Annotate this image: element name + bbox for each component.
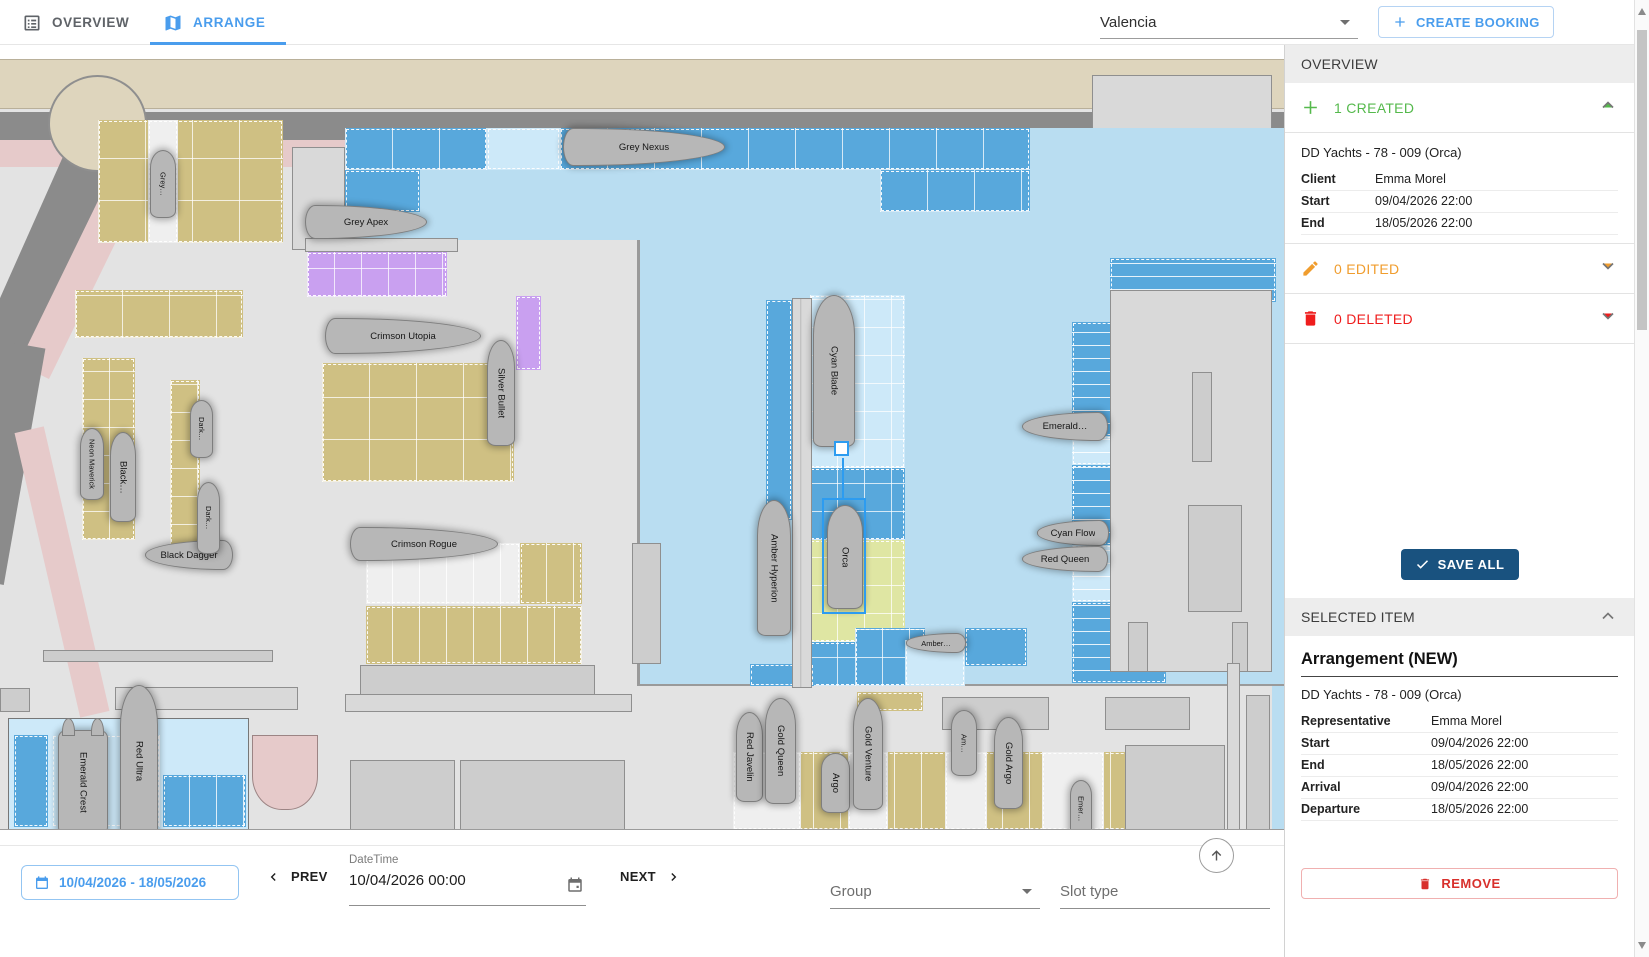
quay bbox=[1092, 75, 1272, 130]
boat-label: Grey Nexus bbox=[619, 142, 669, 153]
boat-label: Dark… bbox=[204, 506, 213, 529]
building bbox=[1246, 695, 1270, 830]
boat-label: Red Queen bbox=[1041, 554, 1090, 565]
slot-type-select[interactable]: Slot type bbox=[1060, 874, 1270, 909]
edited-section-label: 0 EDITED bbox=[1334, 261, 1399, 277]
arrangement-card: Arrangement (NEW) DD Yachts - 78 - 009 (… bbox=[1285, 636, 1634, 827]
arrangement-row: Arrival09/04/2026 22:00 bbox=[1301, 777, 1618, 799]
prev-label: PREV bbox=[291, 869, 328, 884]
tab-overview[interactable]: OVERVIEW bbox=[22, 0, 129, 45]
boat-neon-maverick[interactable]: Neon Maverick bbox=[80, 428, 104, 500]
save-all-label: SAVE ALL bbox=[1438, 557, 1505, 572]
slot-purple[interactable] bbox=[307, 252, 447, 297]
calendar-icon bbox=[34, 875, 50, 891]
dry-storage-slots[interactable] bbox=[366, 606, 582, 664]
overview-panel-title: OVERVIEW bbox=[1301, 56, 1378, 72]
berth-slot-free[interactable] bbox=[487, 128, 560, 170]
scroll-up-arrow-icon[interactable] bbox=[1638, 8, 1646, 15]
building bbox=[1125, 745, 1225, 830]
dock-strip bbox=[305, 238, 458, 252]
tab-arrange-label: ARRANGE bbox=[193, 15, 265, 30]
boat-label: Amber Hyperion bbox=[769, 534, 780, 603]
boat-argo[interactable]: Argo bbox=[821, 753, 850, 813]
chevron-left-icon bbox=[267, 870, 281, 884]
create-booking-label: CREATE BOOKING bbox=[1416, 15, 1540, 30]
chevron-up-icon bbox=[1598, 95, 1618, 120]
selection-connector-line bbox=[842, 458, 844, 500]
scroll-down-arrow-icon[interactable] bbox=[1638, 942, 1646, 949]
boat-label: Gold Queen bbox=[775, 725, 786, 776]
calendar-icon[interactable] bbox=[566, 876, 584, 899]
marina-map: Grey…Grey ApexGrey NexusCrimson UtopiaSi… bbox=[0, 45, 1284, 830]
boat-dark[interactable]: Dark… bbox=[197, 482, 220, 554]
building bbox=[43, 650, 273, 662]
building bbox=[360, 665, 595, 695]
building bbox=[1192, 372, 1212, 462]
overview-sidebar: OVERVIEW 1 CREATED DD Yachts - 78 - 009 … bbox=[1284, 45, 1634, 957]
edited-section-toggle[interactable]: 0 EDITED bbox=[1285, 244, 1634, 294]
pier bbox=[792, 298, 812, 688]
boat-emerald-crest[interactable]: Emerald Crest bbox=[58, 730, 108, 830]
check-icon bbox=[1415, 557, 1430, 572]
boat-label: Grey Apex bbox=[344, 217, 388, 228]
boat-gold-queen[interactable]: Gold Queen bbox=[765, 698, 796, 804]
selection-box bbox=[822, 498, 866, 614]
trash-icon bbox=[1418, 877, 1432, 891]
selected-item-title: SELECTED ITEM bbox=[1301, 609, 1415, 625]
boat-label: Emerald… bbox=[1043, 421, 1088, 432]
top-bar: OVERVIEW ARRANGE Valencia CREATE BOOKING bbox=[0, 0, 1634, 45]
arrangement-row: RepresentativeEmma Morel bbox=[1301, 711, 1618, 733]
booking-title: DD Yachts - 78 - 009 (Orca) bbox=[1301, 145, 1618, 160]
boat-black[interactable]: Black… bbox=[110, 432, 136, 522]
dock-strip bbox=[345, 694, 632, 712]
remove-label: REMOVE bbox=[1441, 876, 1500, 891]
berth-slots-blue[interactable] bbox=[14, 735, 48, 827]
slot-purple[interactable] bbox=[516, 296, 541, 370]
boat-silver-bullet[interactable]: Silver Bullet bbox=[487, 340, 515, 446]
chevron-right-icon bbox=[666, 870, 680, 884]
boat-label: Gold Venture bbox=[863, 726, 874, 781]
boat-label: Emerald Crest bbox=[78, 752, 89, 813]
building bbox=[1128, 622, 1148, 672]
created-section-toggle[interactable]: 1 CREATED bbox=[1285, 83, 1634, 133]
boat-label: Cyan Blade bbox=[829, 346, 840, 395]
berth-slots-blue[interactable] bbox=[965, 628, 1027, 666]
date-range-button[interactable]: 10/04/2026 - 18/05/2026 bbox=[21, 865, 239, 900]
next-button[interactable]: NEXT bbox=[620, 869, 680, 884]
arrangement-title: Arrangement (NEW) bbox=[1301, 650, 1618, 677]
building bbox=[632, 543, 661, 664]
deleted-section-toggle[interactable]: 0 DELETED bbox=[1285, 294, 1634, 344]
plus-icon bbox=[1392, 14, 1408, 30]
boat-label: Black… bbox=[118, 461, 129, 494]
selected-item-panel-header[interactable]: SELECTED ITEM bbox=[1285, 598, 1634, 636]
boat-label: Crimson Rogue bbox=[391, 539, 457, 550]
chevron-down-icon bbox=[1598, 256, 1618, 281]
boat-gold-argo[interactable]: Gold Argo bbox=[994, 717, 1023, 809]
list-icon bbox=[22, 13, 42, 33]
boat-label: Red Ultra bbox=[134, 741, 145, 781]
booking-row: Start09/04/2026 22:00 bbox=[1301, 191, 1618, 213]
plus-icon bbox=[1301, 98, 1320, 117]
prev-button[interactable]: PREV bbox=[267, 869, 328, 884]
boat-label: Red Javelin bbox=[744, 732, 755, 782]
boat-label: Crimson Utopia bbox=[370, 331, 435, 342]
boat-label: Amber… bbox=[921, 639, 951, 648]
building bbox=[460, 760, 625, 830]
marina-select-value: Valencia bbox=[1100, 14, 1156, 31]
arrangement-row: Start09/04/2026 22:00 bbox=[1301, 733, 1618, 755]
create-booking-button[interactable]: CREATE BOOKING bbox=[1378, 6, 1554, 38]
dry-storage-slots[interactable] bbox=[322, 363, 514, 482]
boat-label: Gold Argo bbox=[1003, 742, 1014, 784]
boat-label: Dark… bbox=[197, 417, 206, 440]
next-label: NEXT bbox=[620, 869, 656, 884]
boat-label: Cyan Flow bbox=[1051, 528, 1096, 539]
building bbox=[0, 688, 30, 712]
save-all-button[interactable]: SAVE ALL bbox=[1401, 549, 1519, 580]
overview-panel-header: OVERVIEW bbox=[1285, 45, 1634, 83]
boat-label: Am… bbox=[960, 734, 969, 753]
scroll-to-top-button[interactable] bbox=[1199, 838, 1234, 873]
boat-red-ultra[interactable]: Red Ultra bbox=[120, 685, 158, 830]
boat-label: Argo bbox=[830, 773, 841, 793]
date-range-label: 10/04/2026 - 18/05/2026 bbox=[59, 875, 206, 890]
group-select-label: Group bbox=[830, 883, 872, 900]
remove-button[interactable]: REMOVE bbox=[1301, 868, 1618, 899]
datetime-field-label: DateTime bbox=[349, 854, 586, 866]
berth-slots-blue[interactable] bbox=[163, 775, 246, 827]
boat-red-javelin[interactable]: Red Javelin bbox=[736, 712, 763, 802]
datetime-field-value: 10/04/2026 00:00 bbox=[349, 872, 586, 889]
arrangement-row: End18/05/2026 22:00 bbox=[1301, 755, 1618, 777]
pier bbox=[1110, 290, 1272, 672]
group-select[interactable]: Group bbox=[830, 874, 1040, 909]
boat-grey[interactable]: Grey… bbox=[150, 150, 176, 218]
boat-gold-venture[interactable]: Gold Venture bbox=[853, 698, 883, 810]
booking-row: End18/05/2026 22:00 bbox=[1301, 213, 1618, 235]
boat-amber-hyperion[interactable]: Amber Hyperion bbox=[757, 500, 791, 636]
deleted-section-label: 0 DELETED bbox=[1334, 311, 1413, 327]
marina-select[interactable]: Valencia bbox=[1100, 6, 1358, 39]
arrangement-subtitle: DD Yachts - 78 - 009 (Orca) bbox=[1301, 687, 1618, 702]
berth-slots-blue[interactable] bbox=[880, 170, 1030, 212]
boat-cyan-blade[interactable]: Cyan Blade bbox=[813, 295, 855, 447]
created-section-label: 1 CREATED bbox=[1334, 100, 1414, 116]
map-icon bbox=[163, 13, 183, 33]
boat-am[interactable]: Am… bbox=[951, 710, 977, 776]
boat-label: Emer… bbox=[1077, 796, 1086, 821]
page-scrollbar[interactable] bbox=[1634, 0, 1649, 957]
slot-type-select-label: Slot type bbox=[1060, 883, 1118, 900]
trash-icon bbox=[1301, 309, 1320, 328]
active-tab-underline bbox=[150, 42, 286, 45]
boat-label: Grey… bbox=[159, 172, 168, 196]
selection-rotate-handle[interactable] bbox=[834, 441, 849, 456]
berth-slots-blue[interactable] bbox=[345, 128, 487, 170]
chevron-up-icon bbox=[1598, 606, 1618, 629]
scrollbar-thumb[interactable] bbox=[1637, 30, 1647, 330]
building bbox=[1105, 697, 1190, 730]
dry-storage-slots[interactable] bbox=[98, 120, 283, 243]
arrangement-row: Departure18/05/2026 22:00 bbox=[1301, 799, 1618, 821]
boat-label: Silver Bullet bbox=[496, 368, 507, 418]
chevron-down-icon bbox=[1022, 889, 1032, 894]
boat-label: Neon Maverick bbox=[88, 439, 97, 489]
berth-slots-blue[interactable] bbox=[766, 300, 792, 520]
datetime-field[interactable]: DateTime 10/04/2026 00:00 bbox=[349, 854, 586, 906]
booking-row: ClientEmma Morel bbox=[1301, 169, 1618, 191]
boat-dark[interactable]: Dark… bbox=[190, 400, 213, 458]
road-shoulder bbox=[252, 735, 318, 810]
chevron-down-icon bbox=[1340, 20, 1350, 25]
tab-overview-label: OVERVIEW bbox=[52, 15, 129, 30]
chevron-down-icon bbox=[1598, 306, 1618, 331]
created-booking-card: DD Yachts - 78 - 009 (Orca) ClientEmma M… bbox=[1285, 133, 1634, 244]
building bbox=[1188, 505, 1242, 612]
dry-storage-slots[interactable] bbox=[75, 290, 243, 338]
arrow-up-icon bbox=[1208, 847, 1225, 864]
tab-arrange[interactable]: ARRANGE bbox=[163, 0, 265, 45]
pencil-icon bbox=[1301, 259, 1320, 278]
building bbox=[350, 760, 455, 830]
dry-storage-slots[interactable] bbox=[520, 543, 582, 604]
bottom-toolbar: 10/04/2026 - 18/05/2026 PREV DateTime 10… bbox=[0, 845, 1284, 957]
boat-emer[interactable]: Emer… bbox=[1070, 780, 1092, 830]
pier bbox=[1227, 663, 1240, 830]
